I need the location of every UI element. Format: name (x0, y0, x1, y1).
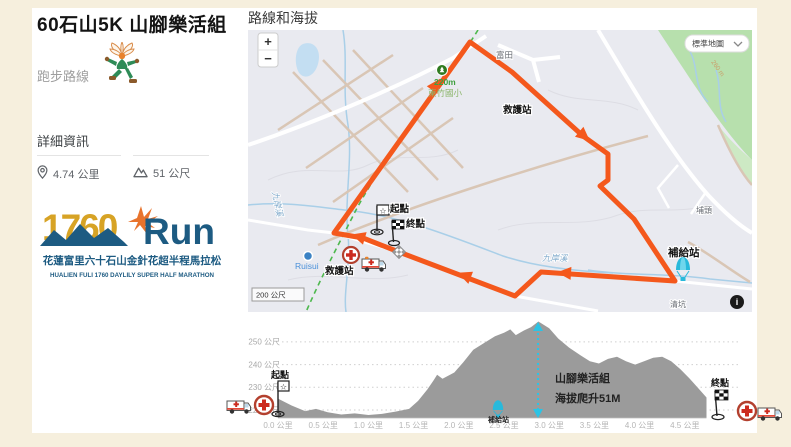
info-icon[interactable]: i (730, 295, 744, 309)
map-section-heading: 路線和海拔 (248, 8, 318, 28)
chart-finish-label: 終點 (711, 377, 729, 388)
x-axis-label: 4.0 公里 (625, 421, 654, 430)
first-aid-cross-icon (343, 247, 359, 263)
logo-en-line: HUALIEN FULI 1760 DAYLILY SUPER HALF MAR… (50, 272, 215, 279)
chart-supply-label: 補給站 (487, 415, 509, 424)
logo-zh-line: 花蓮富里六十石山金針花超半程馬拉松 (43, 254, 222, 267)
school-marker-icon[interactable] (437, 65, 448, 76)
x-axis-label: 0.0 公里 (263, 421, 292, 430)
x-axis-label: 1.0 公里 (354, 421, 383, 430)
lake (296, 43, 319, 76)
page: { "colors": { "page_bg": "#f6efdd", "rou… (0, 0, 791, 445)
elevation-value: 51 公尺 (153, 165, 190, 181)
map-type-dropdown[interactable]: 標準地圖 (685, 35, 749, 52)
svg-text:☆: ☆ (379, 207, 386, 216)
x-axis-label: 2.0 公里 (444, 421, 473, 430)
elevation-chart: 250 公尺240 公尺230 公尺220 公尺0.0 公里0.5 公里1.0 … (225, 318, 791, 442)
chart-start-label: 起點 (270, 369, 289, 380)
aid-station-bottom-label: 救護站 (325, 265, 354, 277)
details-heading: 詳細資訊 (37, 131, 89, 150)
x-axis-label: 3.0 公里 (535, 421, 564, 430)
page-title: 60石山5K 山腳樂活組 (37, 10, 227, 37)
y-axis-label: 250 公尺 (248, 338, 280, 347)
river-label-left: 九岸溪 (270, 190, 285, 218)
chart-first-aid-start-icon (255, 396, 273, 414)
distance-detail: 4.74 公里 (37, 155, 121, 182)
zoom-control[interactable]: + − (258, 33, 278, 67)
y-axis-label: 240 公尺 (248, 360, 280, 369)
x-axis-label: 1.5 公里 (399, 421, 428, 430)
zoom-in-button[interactable]: + (264, 34, 272, 49)
chart-ambulance-finish-icon (758, 408, 782, 421)
aid-station-top-label: 救護站 (503, 104, 532, 116)
scale-bar: 200 公尺 (252, 288, 304, 301)
town-marker-icon[interactable] (304, 252, 313, 261)
place-label-qingkeng: 清坑 (670, 299, 686, 309)
logo-run-text: Run (143, 211, 215, 252)
x-axis-label: 0.5 公里 (309, 421, 338, 430)
y-axis-label: 230 公尺 (248, 383, 280, 392)
start-label: 起點 (389, 203, 410, 215)
group-annotation-line1: 山腳樂活組 (555, 371, 610, 385)
elevation-detail: 51 公尺 (133, 155, 209, 181)
town-label-ruisui: Ruisui (295, 261, 319, 271)
school-distance-label: 220m (434, 77, 456, 87)
river-label-main: 九岸溪 (542, 253, 569, 263)
elevation-area (278, 322, 707, 419)
chart-first-aid-finish-icon (738, 402, 756, 420)
checkpoint-diamond-icon (393, 246, 406, 259)
place-label-futian: 富田 (496, 50, 513, 60)
location-pin-icon (37, 165, 48, 182)
svg-text:i: i (736, 297, 739, 307)
map-type-value: 標準地圖 (692, 39, 724, 49)
school-name-label: 東竹國小 (428, 88, 463, 98)
ambulance-icon (362, 257, 386, 272)
daylily-mascot-icon (100, 42, 144, 95)
x-axis-label: 4.5 公里 (670, 421, 699, 430)
place-label-putou: 埔頭 (696, 205, 712, 215)
finish-flag-icon (389, 220, 405, 246)
mountain-icon (133, 165, 148, 181)
route-map[interactable]: 220m 東竹國小 富田 救護站 埔頭 補給站 清坑 九岸溪 九岸溪 260 m… (248, 30, 752, 312)
chart-finish-flag-icon (712, 390, 728, 420)
scale-label: 200 公尺 (256, 291, 286, 300)
finish-label: 終點 (406, 218, 426, 230)
chart-ambulance-start-icon (227, 401, 251, 414)
group-annotation-line2: 海拔爬升51M (555, 391, 620, 405)
svg-text:☆: ☆ (280, 383, 287, 392)
x-axis-label: 3.5 公里 (580, 421, 609, 430)
route-type-label: 跑步路線 (37, 66, 89, 85)
event-logo: 1760 Run 花蓮富里六十石山金針花超半程馬拉松 HUALIEN FULI … (40, 200, 225, 297)
distance-value: 4.74 公里 (53, 166, 99, 182)
zoom-out-button[interactable]: − (264, 51, 272, 66)
